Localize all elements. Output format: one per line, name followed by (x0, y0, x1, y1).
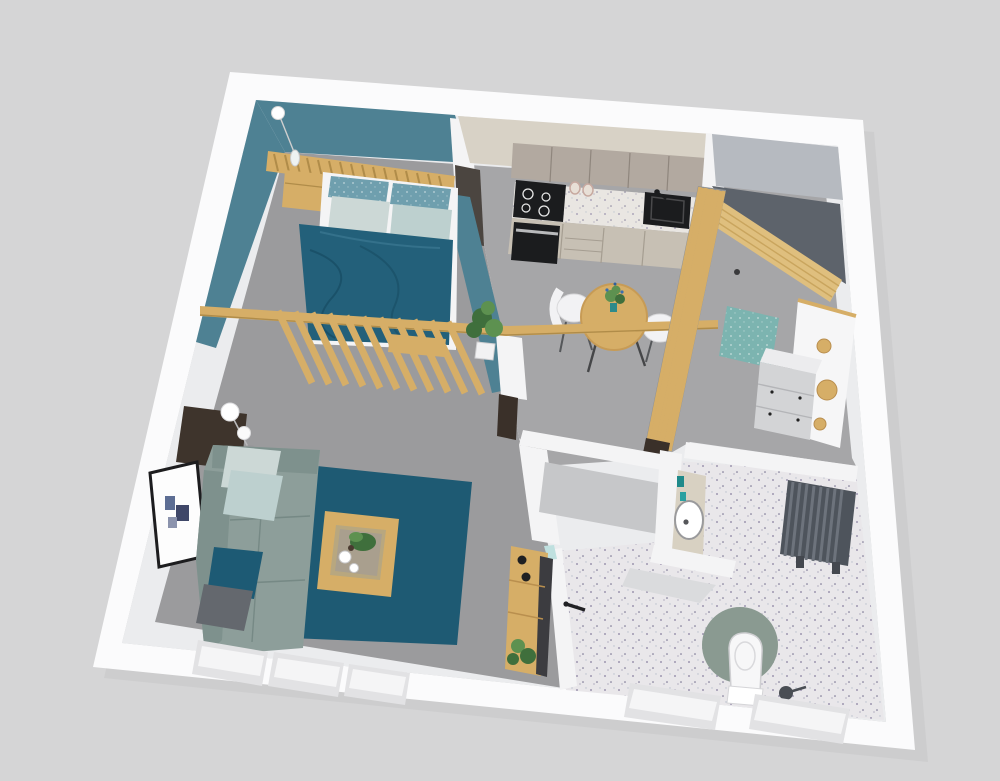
basin-drain (683, 519, 688, 524)
coffee-table (317, 511, 399, 597)
cup (339, 551, 351, 563)
cooktop (513, 180, 566, 222)
wood-knob-hook (817, 380, 837, 400)
shelf-deco (518, 556, 527, 565)
toiletry-bottle (677, 476, 684, 487)
floor-plan-screenshot (0, 0, 1000, 781)
wood-knob-hook (814, 418, 826, 430)
toiletry-bottle (680, 492, 686, 501)
divider-wall-post (497, 394, 518, 440)
door-handle (734, 269, 740, 275)
divider-wall-end-cap (496, 334, 527, 400)
bowl (348, 545, 354, 551)
vanity (672, 470, 706, 556)
cup (350, 564, 359, 573)
shelf-deco (522, 573, 531, 582)
ladder-shelf (505, 546, 553, 677)
sofa (196, 445, 320, 656)
pillow-pale (223, 470, 283, 521)
pillow-gray (196, 584, 253, 631)
floor-plan-render (0, 0, 1000, 781)
oven (511, 222, 560, 264)
wood-knob-hook (817, 339, 831, 353)
